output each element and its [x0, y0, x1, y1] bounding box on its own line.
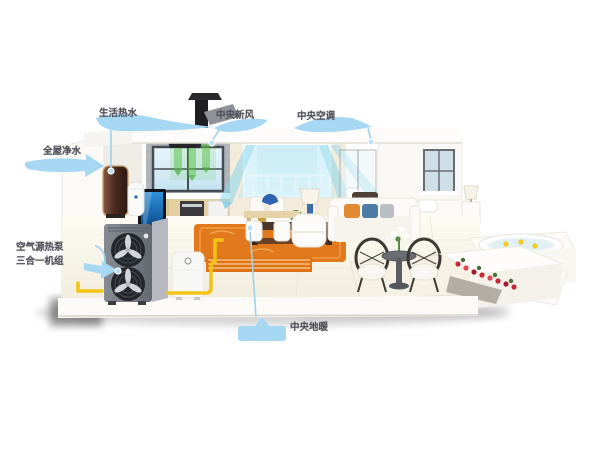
callout-dot — [115, 268, 121, 274]
fan-top — [111, 233, 145, 267]
callout-dot — [247, 225, 253, 231]
rubber-duck — [518, 239, 523, 244]
sofa-pillow-orange — [344, 204, 360, 218]
bedside-lamp — [464, 186, 478, 199]
rubber-duck — [503, 241, 508, 246]
heat-pump-outdoor-unit — [104, 218, 168, 305]
label-fresh-air: 中央新风 — [216, 110, 254, 121]
table-lamp — [300, 189, 320, 204]
callout-dot — [108, 168, 114, 174]
callout-dot — [209, 140, 215, 146]
label-water-purification: 全屋净水 — [43, 146, 81, 157]
house-cutaway-scene — [0, 0, 600, 450]
dining-table — [244, 211, 300, 218]
water-purifier — [128, 182, 144, 216]
armchair — [292, 214, 326, 247]
label-hot-water: 生活热水 — [99, 108, 137, 119]
hot-water-tank — [103, 166, 128, 218]
label-heat-pump-line1: 空气源热泵 — [16, 242, 64, 253]
rubber-duck — [532, 243, 537, 248]
sofa-pillow-gray — [380, 204, 394, 218]
callout-dot — [368, 139, 374, 145]
sofa-pillow-blue — [362, 204, 378, 218]
heat-pump-home-illustration: 生活热水 中央新风 中央空调 全屋净水 空气源热泵 三合一机组 中央地暖 — [0, 0, 600, 450]
label-floor-heating: 中央地暖 — [290, 322, 328, 333]
label-central-ac: 中央空调 — [297, 111, 335, 122]
label-heat-pump-line2: 三合一机组 — [16, 256, 64, 267]
